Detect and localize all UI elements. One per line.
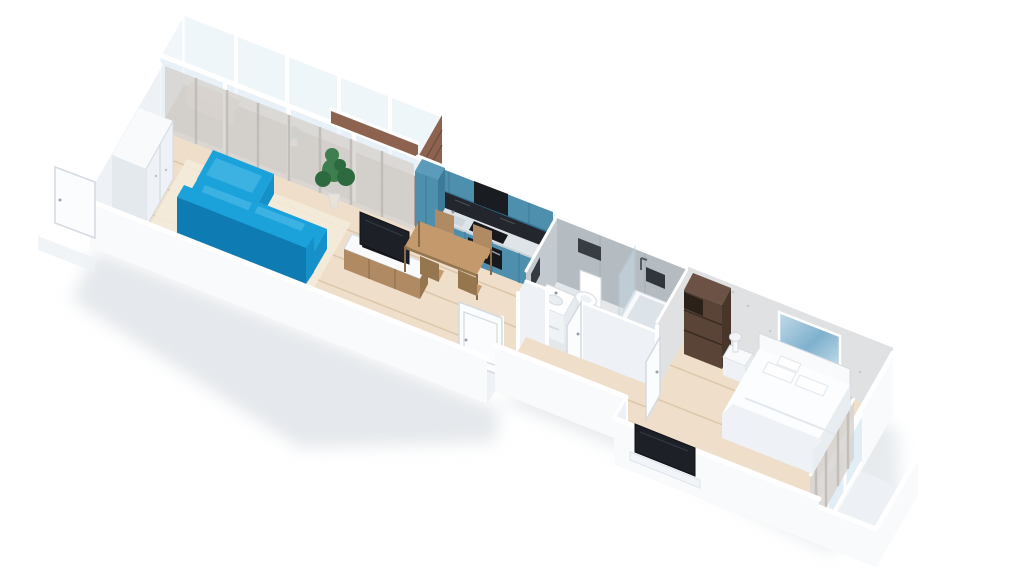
floorplan-canvas [0,0,1024,576]
entrance-door-open [38,167,95,272]
apartment-3d-floorplan [0,0,1024,576]
entrance-landing [38,236,95,272]
